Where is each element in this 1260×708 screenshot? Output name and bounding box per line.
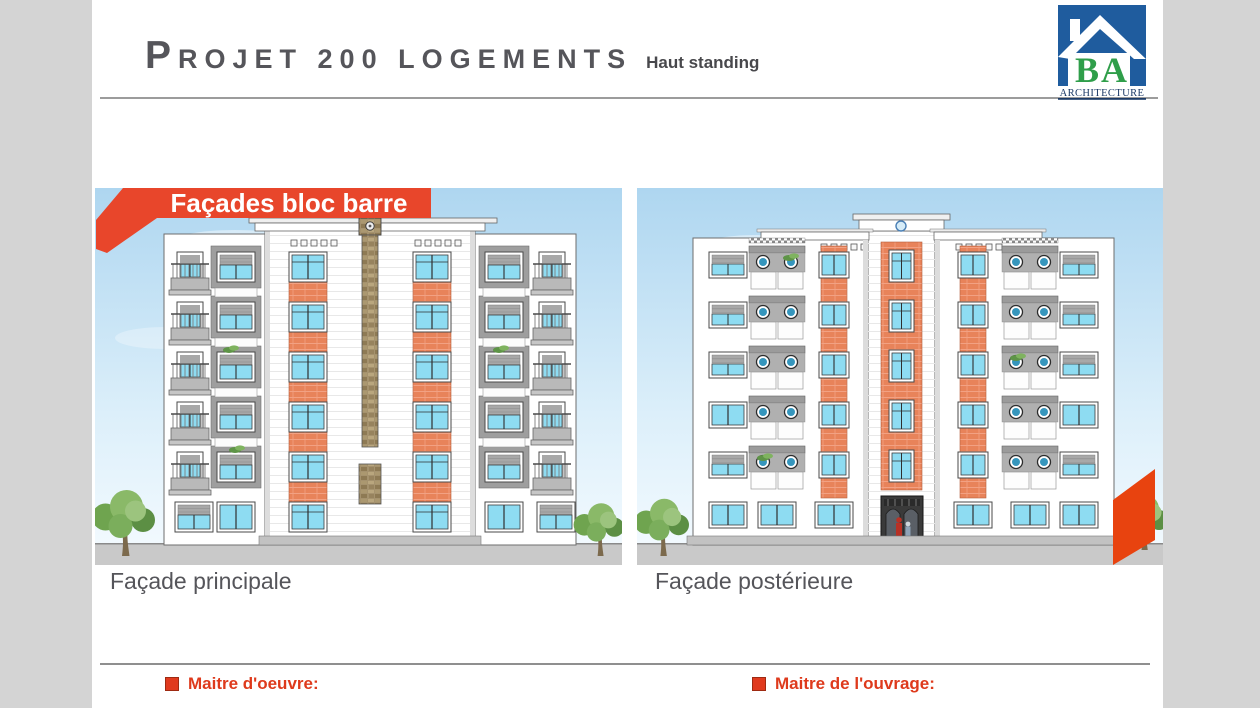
logo-name: ARCHITECTURE	[1060, 88, 1145, 99]
logo-initials: BA	[1075, 50, 1129, 90]
ground	[637, 544, 1163, 565]
tower-ornament	[896, 221, 906, 231]
facade-principale-drawing	[95, 188, 622, 565]
ground	[95, 544, 622, 565]
bullet-icon	[165, 677, 179, 691]
caption-facade-posterieure: Façade postérieure	[655, 568, 853, 595]
presentation-slide: Projet 200 logements Haut standing BA AR…	[92, 0, 1163, 708]
stone-column	[362, 235, 378, 447]
page-title: Projet 200 logements	[145, 34, 632, 78]
footer-divider	[100, 663, 1150, 665]
title-divider	[100, 97, 1158, 99]
slide-header: Projet 200 logements Haut standing	[145, 34, 759, 78]
screenshot-stage: Projet 200 logements Haut standing BA AR…	[0, 0, 1260, 708]
building-block	[164, 218, 576, 545]
ba-architecture-logo: BA ARCHITECTURE	[1056, 3, 1148, 101]
building-block	[687, 214, 1120, 545]
page-subtitle: Haut standing	[646, 53, 759, 73]
facade-posterieure-drawing	[637, 188, 1163, 565]
bullet-icon	[752, 677, 766, 691]
footer-maitre-oeuvre: Maitre d'oeuvre:	[165, 674, 319, 694]
footer-label: Maitre de l'ouvrage:	[775, 674, 935, 694]
caption-facade-principale: Façade principale	[110, 568, 292, 595]
footer-maitre-ouvrage: Maitre de l'ouvrage:	[752, 674, 935, 694]
footer-label: Maitre d'oeuvre:	[188, 674, 319, 694]
